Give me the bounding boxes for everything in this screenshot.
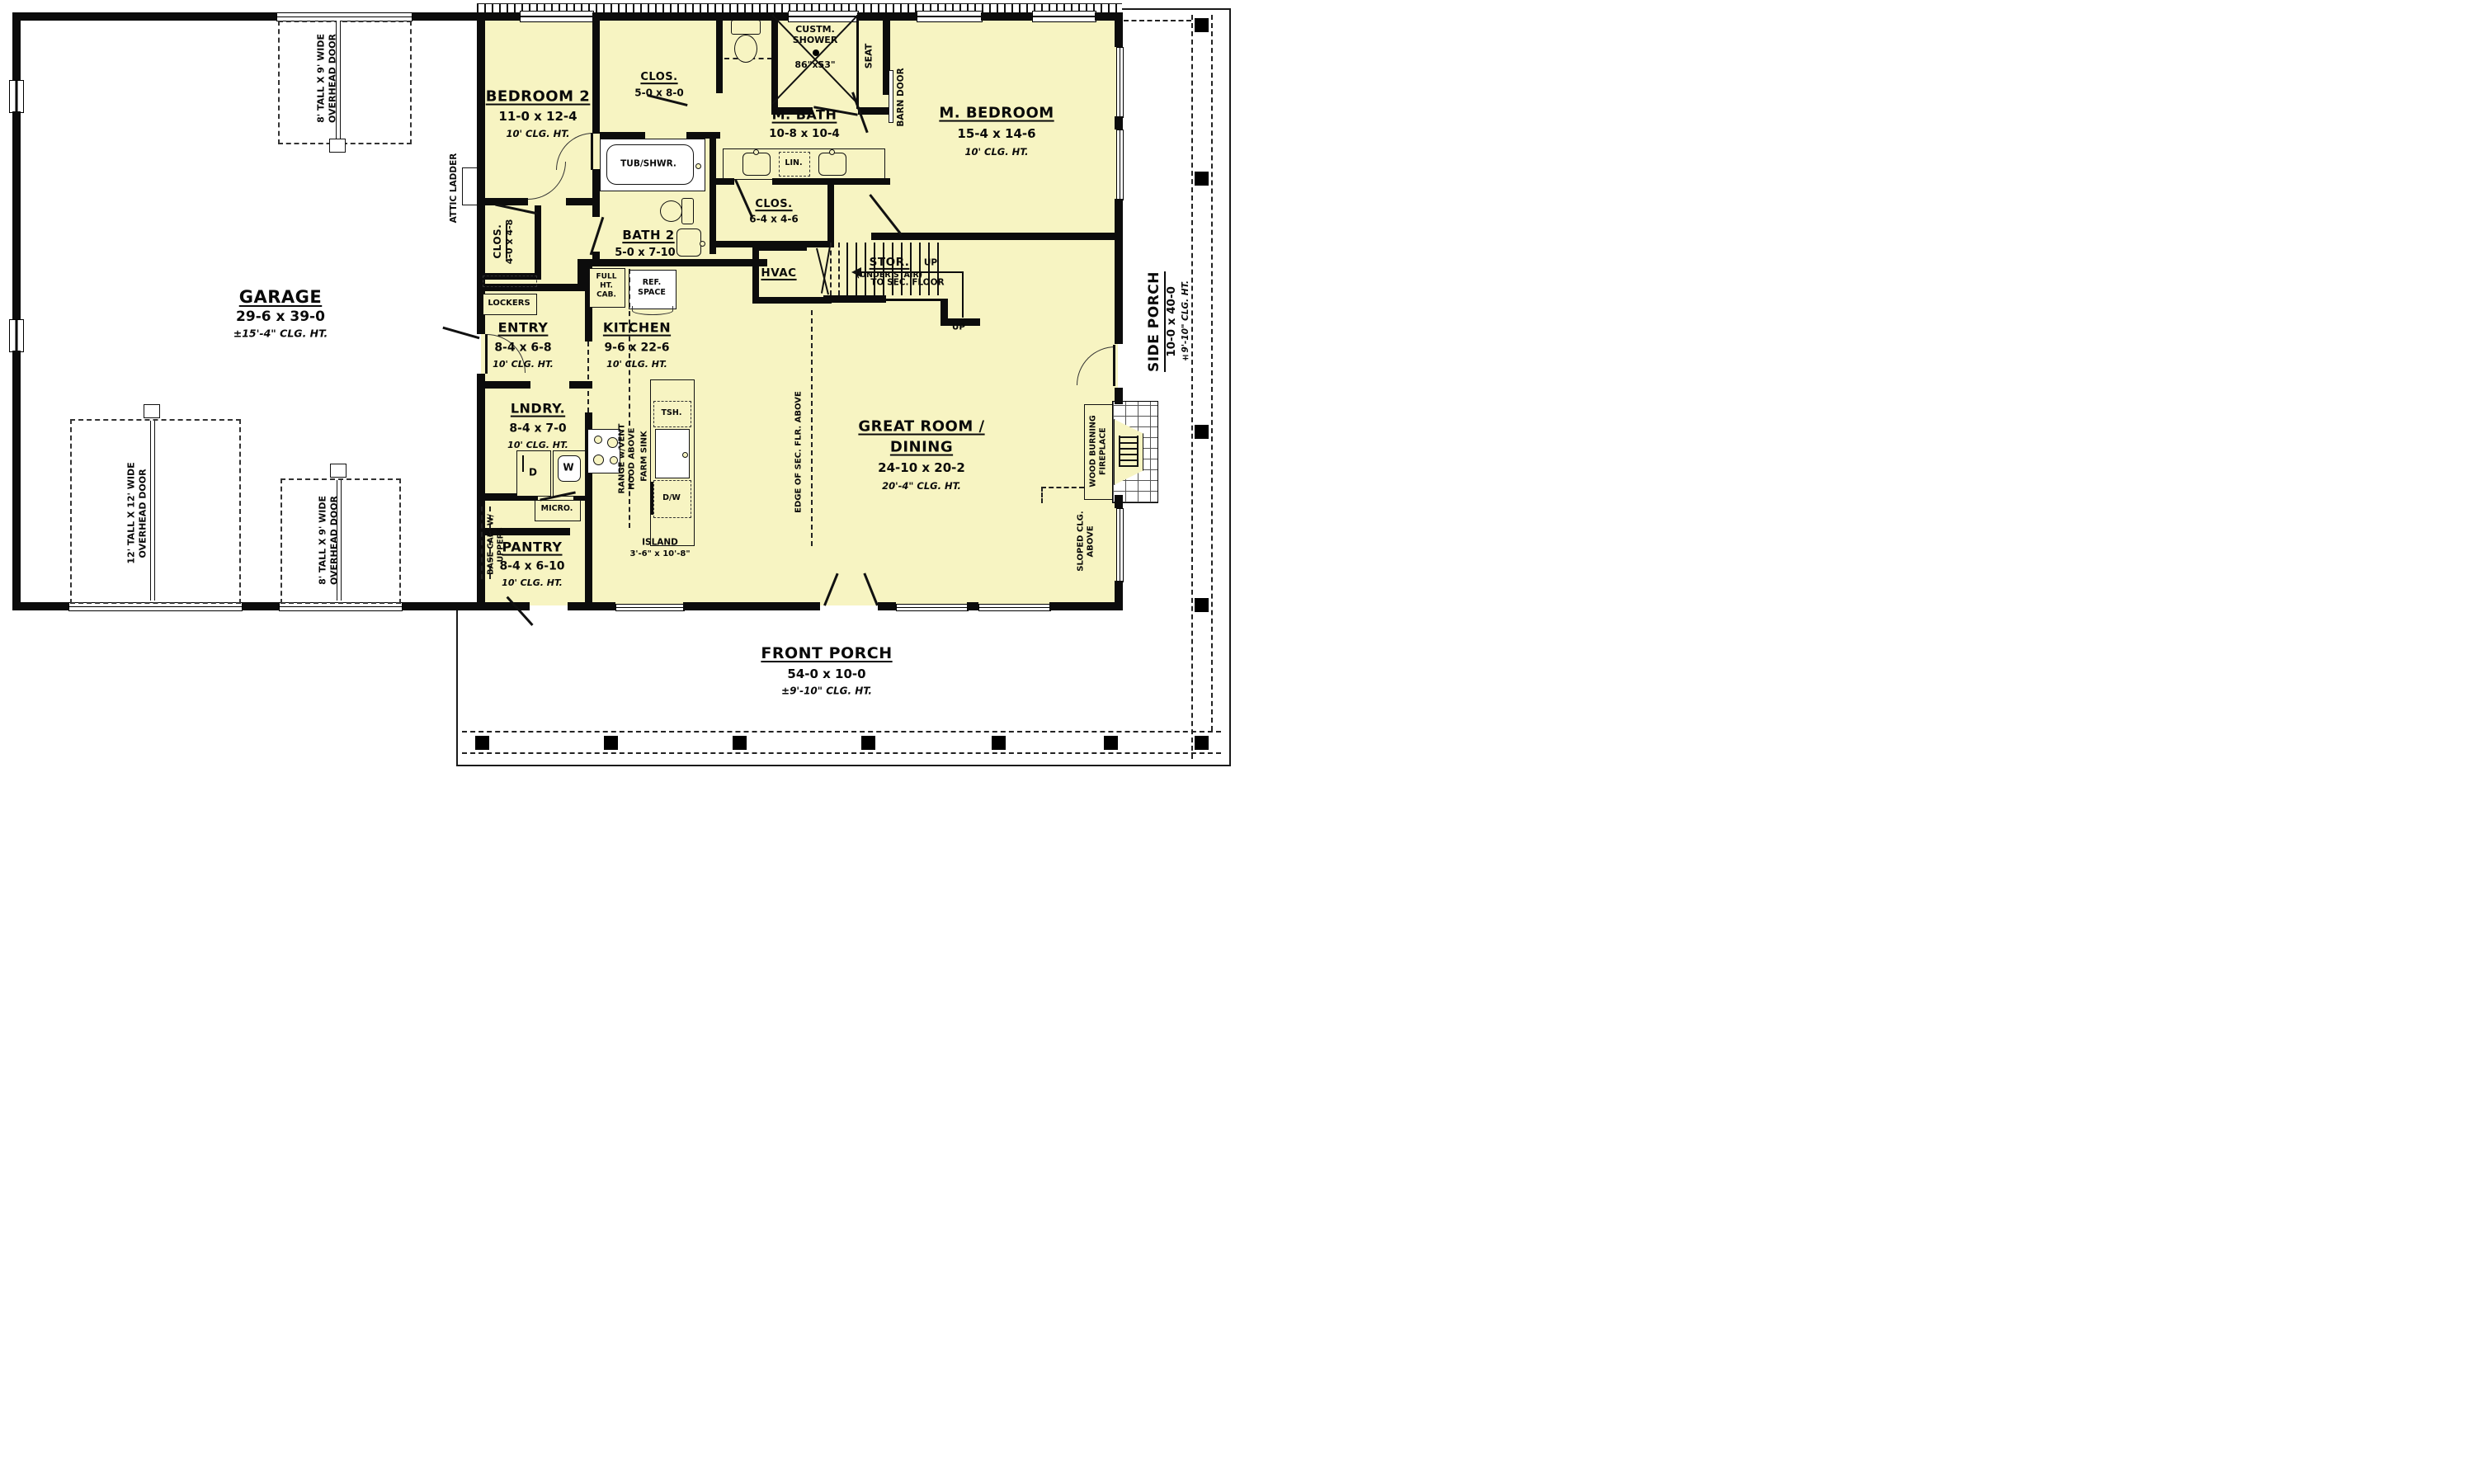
garage-dims: 29-6 x 39-0 bbox=[236, 310, 325, 325]
porch-column bbox=[604, 736, 618, 750]
house-wall-front-1 bbox=[477, 602, 530, 610]
porch-column bbox=[733, 736, 747, 750]
mbedroom-window-east-2 bbox=[1116, 130, 1124, 200]
greatroom-label-2: DINING bbox=[890, 440, 953, 456]
island-dims: 3'-6" x 10'-8" bbox=[629, 550, 690, 559]
range-label-l2: HOOD ABOVE bbox=[628, 427, 637, 489]
entry-lndry-wall-a bbox=[481, 381, 530, 389]
entry-clg: 10' CLG. HT. bbox=[493, 360, 554, 370]
overhead-door-motor-top bbox=[329, 139, 346, 153]
fireplace-corner-s bbox=[1115, 495, 1123, 508]
house-wall-top-4 bbox=[981, 12, 1032, 21]
ref-space-l2: SPACE bbox=[638, 289, 666, 297]
mbath-faucet-1 bbox=[753, 149, 759, 155]
overhead-door-12-l1: 12' TALL X 12' WIDE bbox=[126, 462, 137, 563]
lin-label: LIN. bbox=[785, 159, 802, 167]
sloped-l1: SLOPED CLG. bbox=[1077, 511, 1086, 571]
farm-sink-label: FARM SINK bbox=[640, 431, 649, 482]
hvac-wall-west bbox=[752, 244, 759, 304]
porch-column bbox=[861, 736, 875, 750]
side-porch-dashed-edge2 bbox=[1211, 15, 1213, 731]
wc-toilet-bowl bbox=[734, 35, 757, 63]
lndry-clg: 10' CLG. HT. bbox=[507, 440, 568, 450]
seat-label: SEAT bbox=[864, 44, 874, 69]
side-porch-clg: ±9'-10" CLG. HT. bbox=[1181, 280, 1190, 362]
stair-dash-2 bbox=[838, 243, 840, 295]
greatroom-dims: 24-10 x 20-2 bbox=[878, 462, 965, 475]
mbedroom-window-east-1 bbox=[1116, 47, 1124, 118]
lndry-dims: 8-4 x 7-0 bbox=[509, 423, 566, 436]
house-wall-east-2 bbox=[1115, 116, 1123, 130]
kitchen-clg: 10' CLG. HT. bbox=[606, 360, 667, 370]
bedroom2-wall-east-a bbox=[592, 12, 600, 134]
bedroom2-label: BEDROOM 2 bbox=[486, 90, 591, 106]
bath2-toilet-bowl bbox=[660, 200, 682, 222]
porch-column bbox=[1195, 425, 1209, 439]
pantry-dims: 8-4 x 6-10 bbox=[499, 561, 564, 573]
bedroom2-door-leaf bbox=[591, 133, 593, 170]
porch-column bbox=[475, 736, 489, 750]
clos4-label-wrap: CLOS. 4-0 x 4-8 bbox=[492, 219, 515, 265]
bath2-dims: 5-0 x 7-10 bbox=[615, 247, 675, 259]
bath2-toilet-tank bbox=[681, 198, 694, 224]
closm-wall-north-a bbox=[716, 178, 734, 185]
house-wall-front-6 bbox=[1049, 602, 1122, 610]
attic-ladder-label-wrap: ATTIC LADDER bbox=[449, 153, 459, 224]
full-ht-cab-l2: HT. bbox=[600, 282, 613, 290]
wc-wall-west bbox=[716, 12, 723, 93]
washer-label: W bbox=[563, 463, 573, 473]
sloped-clg-dash-v bbox=[1041, 487, 1043, 503]
seat-divider bbox=[856, 15, 859, 109]
stair-dash-1 bbox=[830, 243, 832, 295]
range-label-wrap: RANGE w/VENT HOOD ABOVE bbox=[618, 424, 637, 494]
mbath-dims: 10-8 x 10-4 bbox=[769, 128, 840, 139]
stair-tread bbox=[846, 243, 848, 295]
mbedroom-clg: 10' CLG. HT. bbox=[965, 147, 1029, 157]
greatroom-front-window-2 bbox=[978, 604, 1051, 611]
kitchen-wall-north bbox=[577, 259, 767, 266]
garage-wall-top-right bbox=[411, 12, 485, 21]
house-wall-east-6 bbox=[1115, 581, 1123, 610]
side-porch-dashed-edge bbox=[1191, 15, 1193, 759]
mbedroom-window-top-1 bbox=[917, 11, 983, 22]
garage-wall-bottom-c bbox=[401, 602, 485, 610]
mbedroom-window-top-2 bbox=[1032, 11, 1096, 22]
bath2-faucet bbox=[700, 241, 705, 247]
mbath-sink-1 bbox=[742, 153, 771, 176]
lockers-label: LOCKERS bbox=[488, 299, 530, 309]
porch-column bbox=[1104, 736, 1118, 750]
attic-ladder-label: ATTIC LADDER bbox=[449, 153, 459, 224]
porch-column bbox=[992, 736, 1006, 750]
ref-space-l1: REF. bbox=[643, 279, 662, 287]
greatroom-label-1: GREAT ROOM / bbox=[858, 420, 984, 436]
side-porch-label-wrap: SIDE PORCH 10-0 x 40-0 ±9'-10" CLG. HT. bbox=[1146, 271, 1190, 372]
overhead-door-8b-l1: 8' TALL X 9' WIDE bbox=[318, 496, 328, 585]
overhead-door-8b-label: 8' TALL X 9' WIDE OVERHEAD DOOR bbox=[318, 496, 340, 585]
tub-shwr-label: TUB/SHWR. bbox=[620, 159, 676, 168]
bath2-label: BATH 2 bbox=[622, 229, 674, 243]
garage-wall-left-a bbox=[12, 12, 21, 80]
sloped-label-wrap: SLOPED CLG. ABOVE bbox=[1077, 511, 1096, 571]
side-porch-label: SIDE PORCH bbox=[1146, 271, 1162, 372]
closm-dims: 6-4 x 4-6 bbox=[749, 214, 798, 225]
range-fixture bbox=[587, 429, 620, 473]
garage-wall-bottom-b bbox=[241, 602, 279, 610]
house-wall-east-3 bbox=[1115, 199, 1123, 344]
entry-label: ENTRY bbox=[498, 322, 549, 336]
wc-toilet-tank bbox=[731, 20, 761, 35]
front-porch-label: FRONT PORCH bbox=[761, 646, 892, 662]
floor-plan: GARAGE 29-6 x 39-0 ±15'-4" CLG. HT. BEDR… bbox=[0, 0, 1294, 775]
micro-label: MICRO. bbox=[541, 505, 573, 513]
base-cab-label-wrap: BASE CAB. W/ UPPERS bbox=[487, 514, 506, 575]
greatroom-side-door-leaf bbox=[1113, 345, 1115, 386]
porch-outline-left bbox=[456, 610, 458, 766]
bedroom2-window-top bbox=[520, 11, 594, 22]
entry-wall-north-b bbox=[535, 284, 585, 291]
mbedroom-wall-south bbox=[871, 233, 1115, 240]
stor-label: STOR. bbox=[870, 257, 910, 268]
front-porch-dashed-edge2 bbox=[462, 752, 1221, 754]
up-label: UP bbox=[924, 258, 937, 267]
overhead-door-track-12 bbox=[150, 421, 155, 601]
dryer-door-line bbox=[522, 455, 524, 472]
porch-outline-right bbox=[1229, 8, 1231, 766]
hvac-wall-north bbox=[752, 244, 807, 251]
clos-hall-label: CLOS. bbox=[640, 72, 677, 83]
bedroom2-wall-south-b bbox=[566, 198, 600, 205]
clos5-wall-south-b bbox=[686, 132, 720, 139]
stair-wall-south-thick bbox=[823, 295, 886, 303]
mbedroom-dims: 15-4 x 14-6 bbox=[957, 128, 1035, 141]
bath2-wall-west-a bbox=[592, 205, 600, 217]
range-burner-1 bbox=[594, 436, 602, 444]
fireplace-l2: FIREPLACE bbox=[1099, 427, 1108, 475]
custm-shower-label-2: SHOWER bbox=[793, 35, 838, 45]
attic-ladder-bracket bbox=[462, 167, 477, 205]
overhead-door-dashed-top bbox=[278, 21, 412, 144]
porch-column bbox=[1195, 736, 1209, 750]
edge-sec-label-wrap: EDGE OF SEC. FLR. ABOVE bbox=[794, 391, 804, 513]
fireplace-corner-n bbox=[1115, 388, 1123, 404]
range-burner-2 bbox=[607, 437, 618, 448]
ref-door-arc bbox=[632, 306, 673, 315]
front-porch-clg: ±9'-10" CLG. HT. bbox=[781, 686, 872, 697]
overhead-door-dashed-12 bbox=[70, 419, 241, 604]
bath2-divider-east bbox=[709, 139, 716, 254]
mbath-label: M. BATH bbox=[772, 109, 837, 123]
edge-sec-flr-dash bbox=[811, 310, 813, 546]
to-sec-floor-label: TO SEC. FLOOR bbox=[870, 278, 944, 287]
garage-wall-left-c bbox=[12, 351, 21, 610]
farm-sink-label-wrap: FARM SINK bbox=[640, 431, 649, 482]
tub-faucet bbox=[695, 163, 701, 169]
entry-dims: 8-4 x 6-8 bbox=[494, 342, 551, 355]
shower-window-top bbox=[788, 11, 859, 22]
dishwasher-front bbox=[650, 482, 653, 515]
shower-wall-south-b bbox=[858, 107, 890, 115]
overhead-door-top-label: 8' TALL X 9' WIDE OVERHEAD DOOR bbox=[316, 34, 338, 123]
sloped-clg-dash bbox=[1041, 487, 1084, 488]
hall-jog-wall bbox=[577, 259, 585, 285]
barn-door-label: BARN DOOR bbox=[896, 68, 906, 126]
overhead-door-12-label: 12' TALL X 12' WIDE OVERHEAD DOOR bbox=[126, 462, 148, 563]
entry-lndry-wall-b bbox=[569, 381, 592, 389]
dryer-label: D bbox=[529, 468, 537, 478]
kitchen-dims: 9-6 x 22-6 bbox=[604, 342, 669, 355]
house-wall-front-3 bbox=[683, 602, 820, 610]
house-wall-front-4 bbox=[878, 602, 896, 610]
overhead-door-motor-12 bbox=[144, 404, 160, 418]
front-porch-dims: 54-0 x 10-0 bbox=[787, 668, 865, 681]
clos4-dims: 4-0 x 4-8 bbox=[504, 219, 515, 265]
base-cab-l1: BASE CAB. W/ bbox=[487, 514, 496, 575]
range-burner-3 bbox=[593, 455, 604, 465]
range-label-l1: RANGE w/VENT bbox=[618, 424, 627, 494]
kitchen-cased-opening bbox=[587, 342, 589, 412]
fireplace-l1: WOOD BURNING bbox=[1089, 415, 1098, 487]
closm-label: CLOS. bbox=[755, 199, 792, 210]
tsh-label: TSH. bbox=[662, 409, 682, 417]
greatroom-clg: 20'-4" CLG. HT. bbox=[882, 481, 961, 491]
base-cab-dash-1 bbox=[481, 506, 483, 579]
kitchen-front-window bbox=[615, 604, 685, 611]
mbath-sink-2 bbox=[818, 153, 846, 176]
overhead-door-8b-l2: OVERHEAD DOOR bbox=[329, 496, 340, 585]
closm-wall-east bbox=[827, 178, 834, 247]
fireplace-grate-icon bbox=[1119, 436, 1138, 467]
shower-center-dot bbox=[813, 49, 819, 56]
porch-column bbox=[1195, 598, 1209, 612]
bath2-sink bbox=[676, 228, 701, 257]
dw-label: D/W bbox=[662, 494, 681, 502]
island-label: ISLAND bbox=[642, 538, 678, 547]
overhead-door-top-l2: OVERHEAD DOOR bbox=[328, 34, 338, 123]
mbath-faucet-2 bbox=[829, 149, 835, 155]
farm-sink-faucet bbox=[682, 452, 688, 458]
entry-door-leaf bbox=[485, 334, 488, 374]
lndry-label: LNDRY. bbox=[511, 403, 565, 417]
clos-hall-dims: 5-0 x 8-0 bbox=[634, 88, 683, 99]
mbedroom-label: M. BEDROOM bbox=[939, 106, 1054, 122]
greatroom-front-window-1 bbox=[896, 604, 969, 611]
lockers-dashed bbox=[483, 276, 537, 287]
full-ht-cab-l3: CAB. bbox=[596, 291, 616, 299]
fireplace-label-wrap: WOOD BURNING FIREPLACE bbox=[1089, 415, 1108, 487]
greatroom-window-east bbox=[1116, 508, 1124, 582]
hvac-wall-south bbox=[752, 297, 832, 304]
sloped-l2: ABOVE bbox=[1087, 525, 1096, 557]
base-cab-l2: UPPERS bbox=[497, 527, 506, 562]
garage-label: GARAGE bbox=[239, 288, 323, 306]
house-wall-east-1 bbox=[1115, 12, 1123, 47]
front-porch-dashed-edge bbox=[462, 731, 1221, 733]
pantry-wall-east bbox=[585, 493, 592, 602]
bedroom2-clg: 10' CLG. HT. bbox=[507, 129, 570, 139]
porch-column bbox=[1195, 18, 1209, 32]
up-arrow-line-v bbox=[962, 271, 964, 318]
custm-shower-label-1: CUSTM. bbox=[795, 25, 835, 35]
pantry-clg: 10' CLG. HT. bbox=[502, 578, 563, 588]
kitchen-label: KITCHEN bbox=[603, 322, 671, 336]
house-wall-front-5 bbox=[967, 602, 978, 610]
edge-sec-label: EDGE OF SEC. FLR. ABOVE bbox=[794, 391, 804, 513]
full-ht-cab-l1: FULL bbox=[596, 273, 617, 280]
clos4-label: CLOS. bbox=[492, 224, 503, 259]
overhead-door-motor-8b bbox=[330, 464, 346, 478]
porch-outline-top bbox=[1118, 8, 1231, 10]
side-porch-dims: 10-0 x 40-0 bbox=[1165, 286, 1178, 357]
garage-window-left-2 bbox=[9, 319, 24, 352]
porch-outline-bottom bbox=[456, 765, 1231, 766]
side-porch-dashed-top bbox=[1124, 20, 1191, 21]
barn-door-label-wrap: BARN DOOR bbox=[896, 68, 906, 126]
garage-clg: ±15'-4" CLG. HT. bbox=[233, 327, 328, 338]
stair-tread bbox=[865, 243, 866, 295]
range-burner-4 bbox=[610, 456, 618, 464]
garage-wall-left-b bbox=[12, 111, 21, 319]
bedroom2-wall-south-a bbox=[481, 198, 528, 205]
stair-wall-south-thin bbox=[886, 299, 944, 301]
custm-shower-dims: 86"x53" bbox=[794, 60, 835, 70]
hvac-label: HVAC bbox=[761, 267, 796, 279]
garage-wall-bottom-a bbox=[12, 602, 68, 610]
garage-wall-top-left bbox=[12, 12, 276, 21]
seat-label-wrap: SEAT bbox=[864, 44, 874, 69]
house-wall-front-2 bbox=[568, 602, 615, 610]
porch-column bbox=[1195, 172, 1209, 186]
pantry-label: PANTRY bbox=[502, 541, 563, 555]
up2-label: UP bbox=[952, 323, 965, 332]
barn-door-slab bbox=[889, 70, 893, 123]
overhead-door-top-l1: 8' TALL X 9' WIDE bbox=[316, 34, 327, 123]
garage-window-left-1 bbox=[9, 80, 24, 113]
clos5-wall-south-a bbox=[600, 132, 645, 139]
clos4-wall-east bbox=[535, 205, 541, 275]
overhead-door-12-l2: OVERHEAD DOOR bbox=[138, 469, 148, 558]
bedroom2-dims: 11-0 x 12-4 bbox=[498, 111, 577, 124]
garage-entry-door-leaf bbox=[443, 327, 480, 339]
